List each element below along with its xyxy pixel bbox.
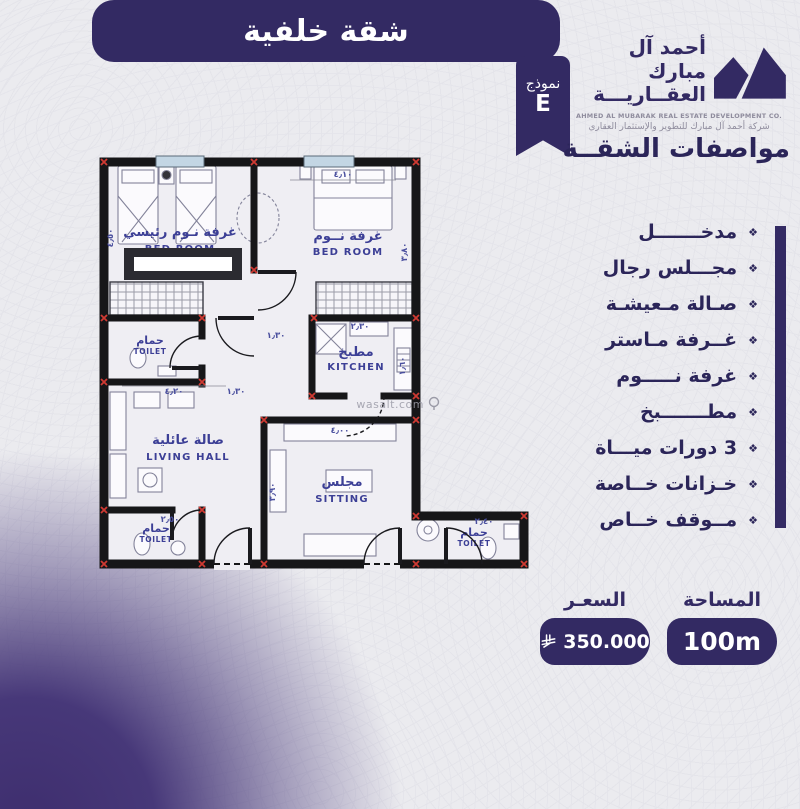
spec-item-label: مــوقف خــاص — [599, 509, 737, 531]
model-badge-label: نموذج — [526, 76, 561, 92]
mountain-house-logo-icon — [714, 42, 790, 100]
spec-item-label: غــرفة مـاستر — [605, 329, 737, 351]
room-label-master-ar: غرفة نـوم رئيسي — [123, 225, 236, 240]
diamond-bullet-icon — [748, 227, 758, 238]
wardrobe — [124, 248, 242, 280]
room-label-toilet-right-en: TOILET — [458, 539, 491, 548]
spec-item: 3 دورات ميـــاة — [543, 430, 758, 466]
diamond-bullet-icon — [748, 335, 758, 346]
area-label: المساحة — [667, 589, 777, 611]
spec-item: صـالة مـعيشـة — [543, 286, 758, 322]
room-label-toilet-mid-en: TOILET — [134, 347, 167, 356]
specs-heading: مواصفات الشقــة — [540, 134, 790, 164]
area-value-pill: 100m — [667, 618, 777, 665]
location-pin-icon — [430, 398, 439, 411]
area-value: 100m — [683, 627, 761, 656]
room-label-toilet-mid-ar: حمام — [136, 334, 164, 347]
dim-sitting-width: ٤٫٠٠ — [331, 426, 350, 436]
room-label-kitchen-en: KITCHEN — [327, 362, 385, 373]
room-label-living-ar: صالة عائلية — [152, 433, 224, 448]
watermark-text: wasalt.com — [356, 398, 424, 411]
spec-item: مــوقف خــاص — [543, 502, 758, 538]
title-banner-text: شقة خلفية — [243, 14, 409, 49]
specs-accent-bar — [775, 226, 786, 528]
window — [304, 156, 354, 167]
diamond-bullet-icon — [748, 479, 758, 490]
specs-list: مدخـــــــل مجـــلس رجال صـالة مـعيشـة غ… — [543, 214, 758, 538]
dim-master-height: ٤٫٥٠ — [106, 229, 116, 248]
model-badge-value: E — [535, 93, 551, 116]
closet-master — [110, 282, 203, 315]
spec-item: خـزانات خــاصة — [543, 466, 758, 502]
company-logo: أحمد آل مبارك العقــاريـــة AHMED AL MUB… — [568, 36, 790, 132]
spec-item: مطـــــــبخ — [543, 394, 758, 430]
spec-item: غــرفة مـاستر — [543, 322, 758, 358]
dim-sitting-height: ٣٫٩٠ — [268, 483, 278, 502]
saudi-riyal-icon — [540, 633, 557, 650]
room-label-toilet-left-en: TOILET — [140, 535, 173, 544]
dim-corridor-2: ١٫٣٠ — [227, 387, 246, 397]
model-badge-body: نموذج E — [516, 56, 570, 136]
closet-bedroom — [316, 282, 412, 315]
dim-corridor-1: ١٫٣٠ — [267, 331, 286, 341]
price-value: 350.000 — [563, 631, 650, 653]
diamond-bullet-icon — [748, 515, 758, 526]
room-label-living-en: LIVING HALL — [146, 452, 230, 463]
price-label: السعـر — [540, 589, 650, 611]
spec-item: غرفة نـــــوم — [543, 358, 758, 394]
spec-item-label: غرفة نـــــوم — [616, 365, 737, 387]
spec-item-label: مجـــلس رجال — [603, 257, 737, 279]
company-name-line2: العقــاريـــة — [568, 83, 706, 107]
price-stat: السعـر 350.000 — [540, 589, 650, 665]
spec-item-label: صـالة مـعيشـة — [606, 293, 737, 315]
watermark: wasalt.com — [356, 398, 438, 412]
company-subtitle-en: AHMED AL MUBARAK REAL ESTATE DEVELOPMENT… — [568, 112, 790, 120]
dim-bedroom-height: ٣٫٨٠ — [400, 243, 410, 262]
company-name-line1: أحمد آل مبارك — [568, 36, 706, 83]
dim-toilet-right-width: ٢٫٤٠ — [475, 517, 494, 527]
room-label-kitchen-ar: مطبخ — [338, 345, 373, 360]
dim-hall-width: ٤٫٢٠ — [165, 387, 184, 397]
spec-item-label: 3 دورات ميـــاة — [595, 437, 737, 459]
spec-item: مجـــلس رجال — [543, 250, 758, 286]
dim-kitchen-height: ١٫٦٠ — [398, 357, 408, 376]
diamond-bullet-icon — [748, 407, 758, 418]
diamond-bullet-icon — [748, 263, 758, 274]
price-value-pill: 350.000 — [540, 618, 650, 665]
room-label-sitting-ar: مجلس — [321, 475, 362, 490]
room-label-sitting-en: SITTING — [315, 494, 369, 505]
company-subtitle-ar: شركة أحمد آل مبارك للتطوير والإستثمار ال… — [568, 122, 790, 132]
dim-bedroom-width: ٤٫١٠ — [334, 170, 353, 180]
spec-item: مدخـــــــل — [543, 214, 758, 250]
room-label-bedroom-en: BED ROOM — [313, 247, 384, 258]
diamond-bullet-icon — [748, 299, 758, 310]
spec-item-label: مدخـــــــل — [638, 221, 737, 243]
room-label-bedroom-ar: غرفة نــوم — [313, 229, 382, 244]
company-name: أحمد آل مبارك العقــاريـــة — [568, 36, 706, 107]
logo-top: أحمد آل مبارك العقــاريـــة — [568, 36, 790, 107]
diamond-bullet-icon — [748, 371, 758, 382]
title-banner: شقة خلفية — [92, 0, 560, 62]
window — [156, 156, 204, 167]
floor-plan: غرفة نـوم رئيسي BED ROOM غرفة نــوم BED … — [98, 152, 534, 592]
diamond-bullet-icon — [748, 443, 758, 454]
dim-toilet-left-width: ٢٫٥٠ — [161, 515, 180, 525]
area-stat: المساحة 100m — [667, 589, 777, 665]
real-estate-poster: شقة خلفية أحمد آل مبارك العقــاريـــة AH… — [0, 0, 800, 809]
spec-item-label: خـزانات خــاصة — [595, 473, 737, 495]
spec-item-label: مطـــــــبخ — [640, 401, 737, 423]
dim-kitchen-width: ٢٫٣٠ — [351, 322, 370, 332]
